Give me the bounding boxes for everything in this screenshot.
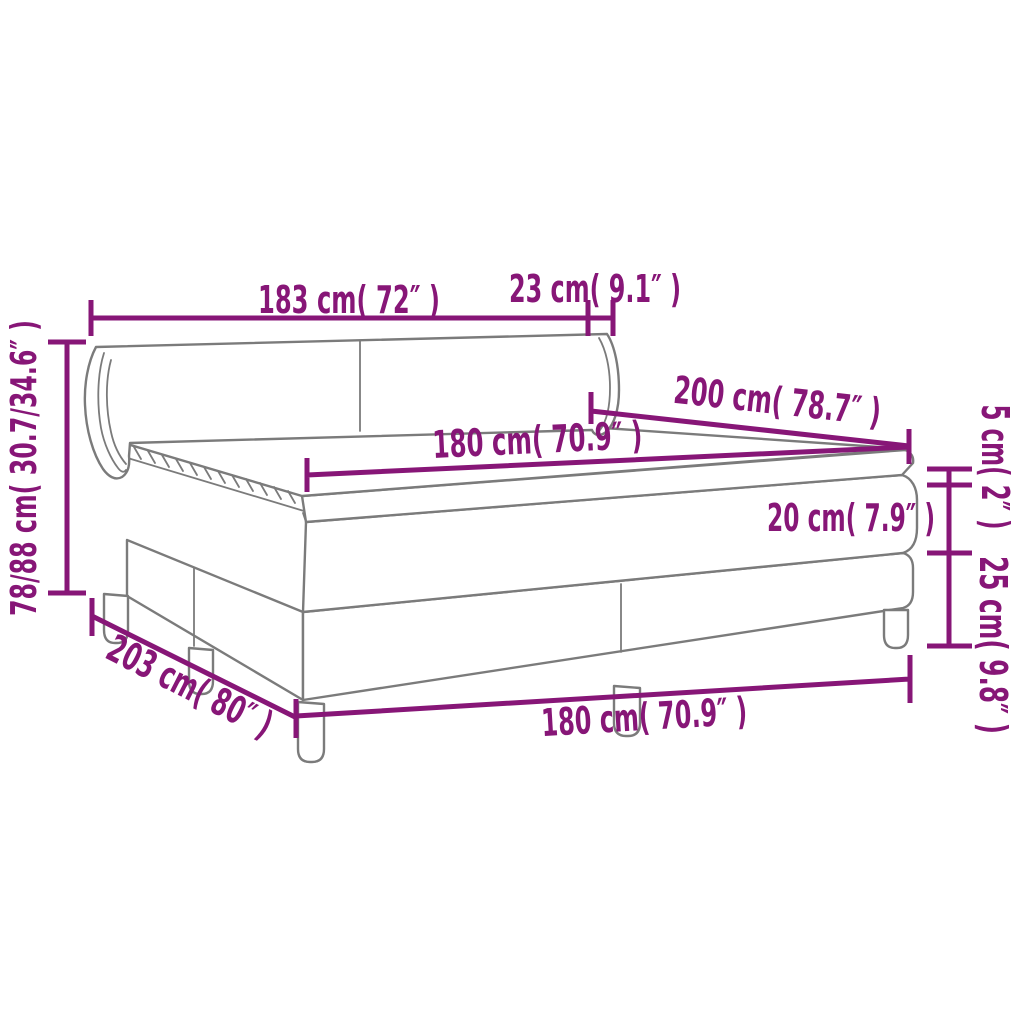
bed-dimension-diagram: 183 cm( 72″ ) 23 cm( 9.1″ ) 78/88 cm( 30… (0, 0, 1024, 1024)
label-topper-height: 5 cm( 2″ ) (973, 405, 1017, 530)
dim-total-height-line (48, 342, 86, 593)
label-wing-depth: 23 cm( 9.1″ ) (509, 267, 681, 311)
diagram-canvas: 183 cm( 72″ ) 23 cm( 9.1″ ) 78/88 cm( 30… (0, 0, 1024, 1024)
label-base-height: 25 cm( 9.8″ ) (971, 556, 1015, 734)
label-mattress-height: 20 cm( 7.9″ ) (767, 496, 935, 540)
label-total-height: 78/88 cm( 30.7/34.6″ ) (4, 320, 45, 616)
bed-leg (298, 702, 324, 762)
bed-leg (884, 610, 908, 648)
label-headboard-width: 183 cm( 72″ ) (258, 278, 440, 322)
